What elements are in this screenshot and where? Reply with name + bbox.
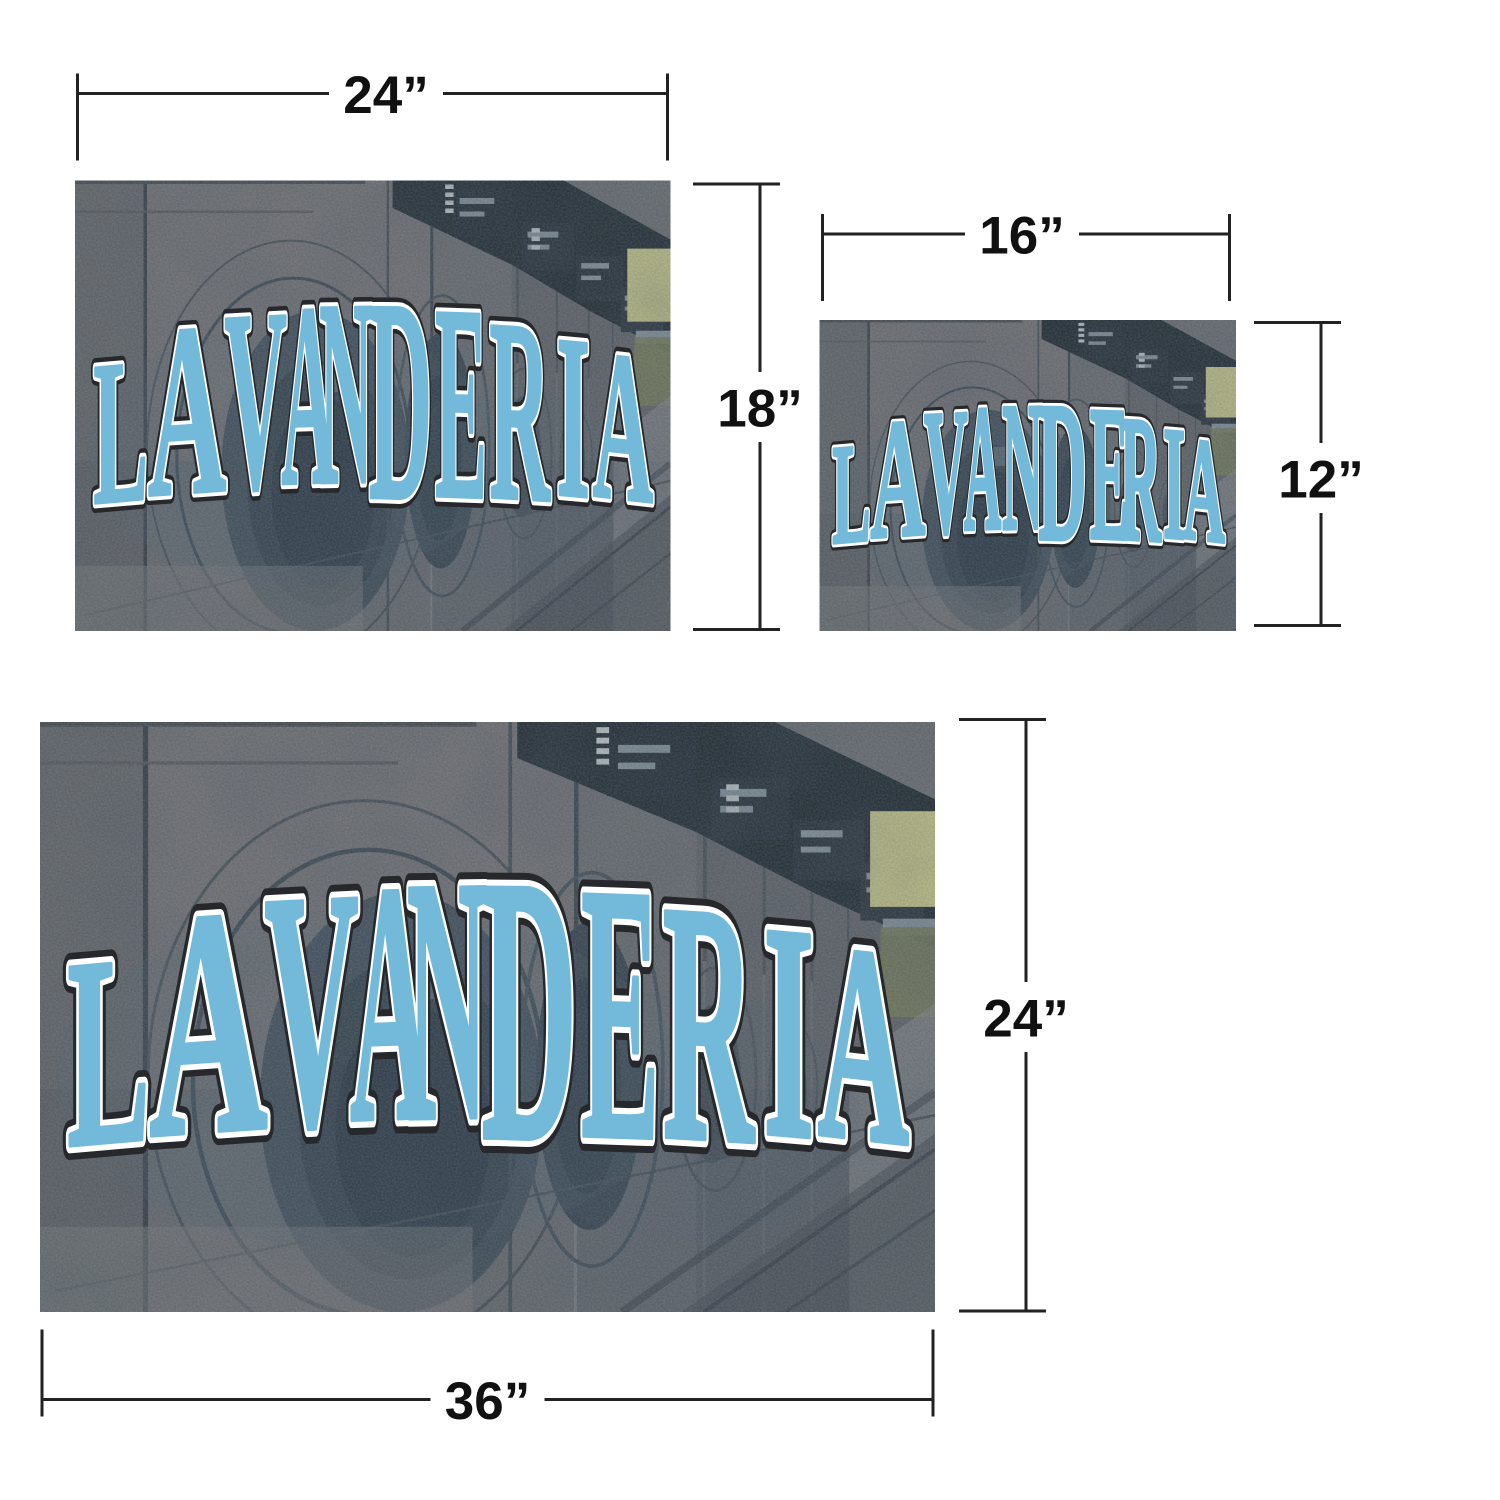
svg-text:D: D bbox=[482, 798, 577, 1221]
svg-text:A: A bbox=[1183, 407, 1225, 575]
svg-text:D: D bbox=[369, 240, 433, 561]
svg-text:N: N bbox=[407, 807, 488, 1195]
svg-text:I: I bbox=[556, 286, 590, 549]
svg-text:R: R bbox=[489, 265, 550, 558]
svg-text:A: A bbox=[870, 383, 925, 575]
svg-text:N: N bbox=[1002, 365, 1043, 570]
svg-text:A: A bbox=[818, 885, 909, 1206]
svg-text:I: I bbox=[763, 861, 814, 1205]
svg-text:L: L bbox=[68, 899, 150, 1205]
svg-text:L: L bbox=[832, 414, 870, 575]
svg-text:R: R bbox=[663, 831, 756, 1216]
svg-text:16”: 16” bbox=[979, 207, 1064, 266]
svg-text:24”: 24” bbox=[983, 990, 1068, 1049]
svg-text:L: L bbox=[93, 315, 148, 548]
svg-text:V: V bbox=[924, 371, 968, 571]
svg-text:24”: 24” bbox=[343, 66, 428, 125]
svg-text:D: D bbox=[1038, 362, 1087, 584]
svg-text:E: E bbox=[581, 809, 659, 1217]
svg-text:A: A bbox=[148, 271, 226, 549]
svg-text:A: A bbox=[964, 368, 1001, 569]
svg-text:V: V bbox=[264, 818, 358, 1199]
svg-text:36”: 36” bbox=[445, 1372, 530, 1431]
svg-text:12”: 12” bbox=[1278, 451, 1363, 510]
svg-text:R: R bbox=[1120, 378, 1162, 580]
svg-text:A: A bbox=[593, 306, 654, 550]
svg-text:E: E bbox=[435, 248, 487, 559]
svg-text:I: I bbox=[1163, 394, 1185, 575]
svg-text:N: N bbox=[319, 245, 373, 542]
svg-text:V: V bbox=[224, 255, 287, 545]
svg-text:18”: 18” bbox=[717, 380, 802, 439]
svg-text:A: A bbox=[150, 841, 268, 1206]
